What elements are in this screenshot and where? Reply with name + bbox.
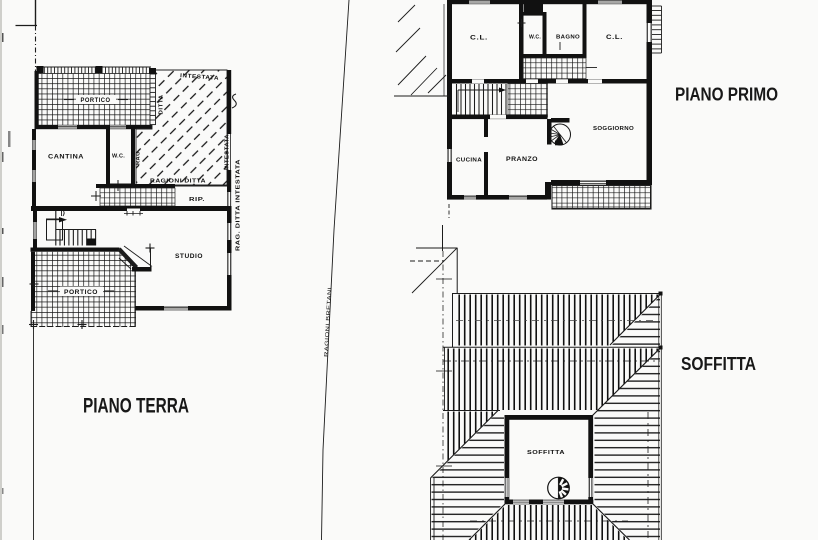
svg-text:W.C.: W.C. (112, 154, 125, 160)
svg-text:RIP.: RIP. (189, 197, 205, 203)
svg-text:PIANO TERRA: PIANO TERRA (83, 395, 189, 418)
svg-text:RAGIONI DITTA: RAGIONI DITTA (150, 179, 206, 185)
svg-text:RAG.: RAG. (136, 149, 142, 165)
svg-text:SOGGIORNO: SOGGIORNO (593, 126, 634, 132)
svg-text:CUCINA: CUCINA (456, 158, 482, 164)
svg-text:STUDIO: STUDIO (175, 253, 203, 260)
svg-text:PRANZO: PRANZO (506, 157, 538, 163)
svg-text:BAGNO: BAGNO (556, 35, 580, 41)
svg-text:CANTINA: CANTINA (48, 154, 84, 161)
svg-text:PORTICO: PORTICO (64, 289, 98, 296)
svg-text:C.L.: C.L. (606, 35, 623, 41)
svg-text:DITTA: DITTA (159, 95, 165, 115)
svg-text:SOFFITTA: SOFFITTA (681, 353, 756, 374)
svg-text:PIANO PRIMO: PIANO PRIMO (675, 84, 778, 105)
svg-text:SOFFITTA: SOFFITTA (527, 450, 566, 456)
svg-text:PORTICO: PORTICO (81, 97, 111, 104)
svg-text:C.L.: C.L. (470, 36, 488, 42)
svg-text:W.C.: W.C. (529, 35, 541, 41)
svg-text:RAG. DITTA INTESTATA: RAG. DITTA INTESTATA (236, 159, 242, 251)
